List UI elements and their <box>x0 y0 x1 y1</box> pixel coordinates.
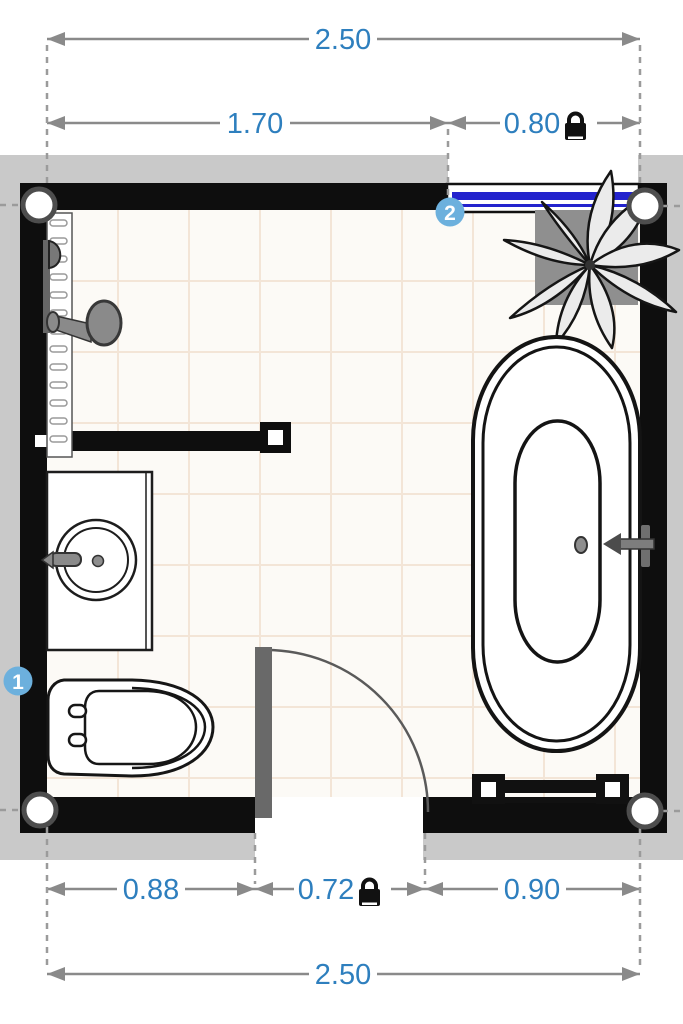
bathtub[interactable] <box>473 337 654 751</box>
marker-1-label: 1 <box>12 671 24 694</box>
doorway <box>255 797 423 833</box>
dim-width-right-value[interactable]: 0.80 <box>504 108 560 140</box>
corner-handle-bottom-left[interactable] <box>24 794 56 826</box>
dim-bottom-left-value[interactable]: 0.88 <box>123 874 179 906</box>
dimension-bottom-segments: 0.88 0.72 0.90 <box>47 871 640 909</box>
floor-plan-canvas: 2.50 1.70 0.80 0.88 0.72 <box>0 0 683 1024</box>
marker-2-label: 2 <box>444 202 456 225</box>
dimension-bottom-total: 2.50 <box>47 956 640 992</box>
basin-drain <box>93 556 104 567</box>
dimension-top-total: 2.50 <box>47 21 640 57</box>
dim-door-width-value[interactable]: 0.72 <box>298 874 354 906</box>
dim-bottom-total-value[interactable]: 2.50 <box>315 959 371 991</box>
washbasin-vanity[interactable] <box>42 472 152 650</box>
corner-handle-top-right[interactable] <box>629 190 661 222</box>
marker-badge-2[interactable]: 2 <box>436 198 465 227</box>
dimension-top-segments: 1.70 0.80 <box>47 105 640 143</box>
dim-bottom-right-value[interactable]: 0.90 <box>504 874 560 906</box>
flush-button <box>69 705 86 717</box>
marker-badge-1[interactable]: 1 <box>4 667 33 696</box>
flush-button <box>69 734 86 746</box>
door-leaf[interactable] <box>255 647 272 818</box>
dim-width-left-value[interactable]: 1.70 <box>227 108 283 140</box>
toilet[interactable] <box>48 680 213 776</box>
tub-drain <box>575 537 587 553</box>
toilet-seat <box>85 691 196 764</box>
corner-handle-top-left[interactable] <box>23 189 55 221</box>
dim-top-total-value[interactable]: 2.50 <box>315 24 371 56</box>
corner-handle-bottom-right[interactable] <box>629 795 661 827</box>
